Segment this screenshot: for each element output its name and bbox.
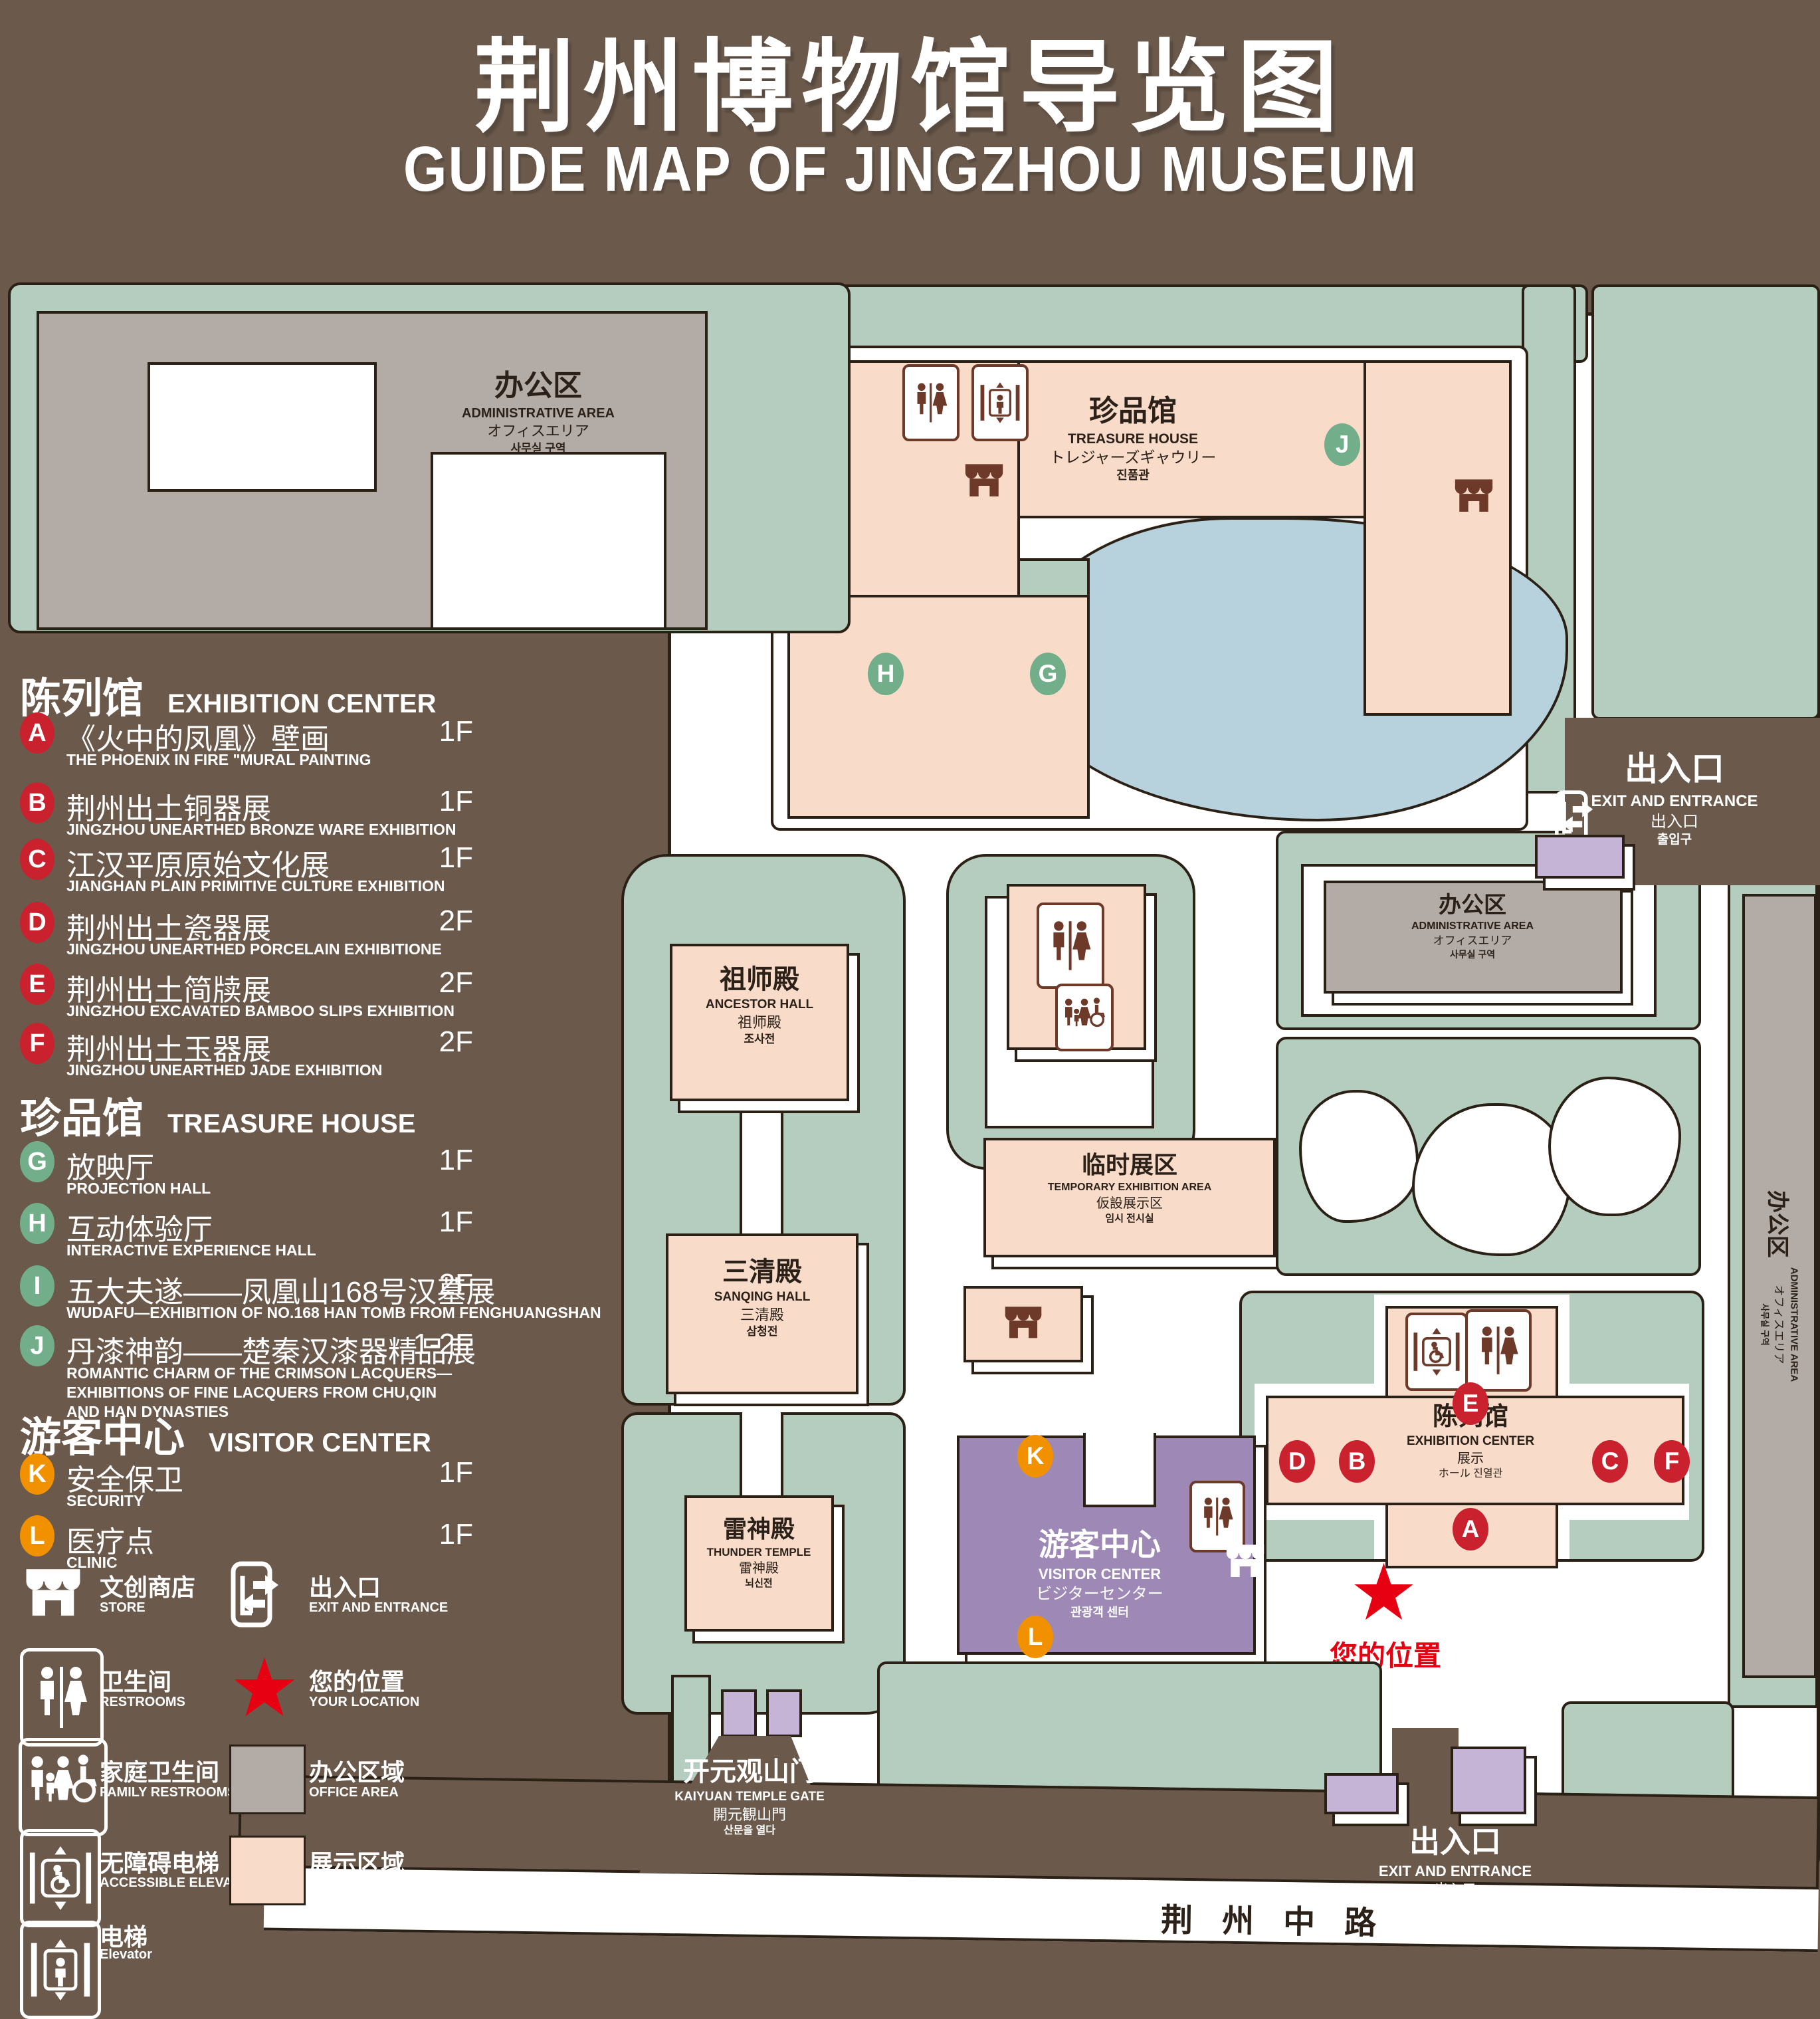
southeast-exit-label: 出入口 EXIT AND ENTRANCE 出入口 출입구 — [1379, 1822, 1532, 1914]
map-marker-H: H — [868, 653, 904, 695]
south-boundary-band: 荆州中路 — [237, 1774, 1819, 1970]
elevator-icon — [20, 1921, 101, 2019]
road-name: 荆州中路 — [1161, 1893, 1406, 1943]
restrooms-icon — [1037, 903, 1104, 989]
admin-east-label: 办公区 ADMINISTRATIVE AREA オフィスエリア 사무실 구역 — [1760, 1190, 1800, 1382]
map-marker-A: A — [1453, 1508, 1488, 1550]
map-marker-L: L — [1017, 1616, 1053, 1658]
legend-location-sublabel: YOUR LOCATION — [309, 1695, 419, 1710]
legend-accessible-elevator-label: 无障碍电梯 — [100, 1844, 219, 1879]
page-title: 荆州博物馆导览图 — [474, 5, 1346, 152]
restrooms-icon — [902, 364, 960, 441]
guide-map-poster: { "title": {"zh": "荆州博物馆导览图", "en": "GUI… — [0, 0, 1820, 1946]
exit-icon — [223, 1555, 289, 1634]
sanqing-hall-label: 三清殿 SANQING HALL 三清殿 삼청전 — [714, 1255, 811, 1339]
map-marker-C: C — [1592, 1440, 1628, 1483]
store-icon — [1000, 1303, 1047, 1344]
restrooms-icon — [1465, 1309, 1532, 1392]
legend-elevator-sublabel: Elevator — [100, 1947, 152, 1963]
store-icon — [1221, 1541, 1269, 1583]
northeast-gate-building — [1535, 835, 1625, 879]
store-icon — [960, 460, 1008, 502]
admin-northwest-label: 办公区 ADMINISTRATIVE AREA オフィスエリア 사무실 구역 — [462, 367, 615, 456]
gate-building-west — [721, 1689, 757, 1737]
admin-center-label: 办公区 ADMINISTRATIVE AREA オフィスエリア 사무실 구역 — [1411, 891, 1534, 960]
map-marker-F: F — [1654, 1440, 1690, 1483]
admin-courtyard-east — [431, 452, 666, 630]
legend-restrooms-label: 卫生间 — [100, 1663, 171, 1697]
legend-section-visitor-center: 游客中心VISITOR CENTER — [20, 1404, 431, 1463]
display-area-swatch — [229, 1836, 306, 1905]
gate-building-east — [766, 1689, 802, 1737]
garden-pond — [1299, 1090, 1419, 1223]
ancestor-hall-label: 祖师殿 ANCESTOR HALL 祖师殿 조사전 — [706, 962, 813, 1047]
garden-pond — [1412, 1103, 1571, 1256]
accessible-elevator-icon — [1405, 1313, 1468, 1391]
map-marker-B: B — [1339, 1440, 1375, 1483]
location-star-icon — [231, 1656, 298, 1719]
legend-section-treasure-house: 珍品馆TREASURE HOUSE — [20, 1085, 415, 1144]
legend-display-area-label: 展示区域 — [309, 1844, 405, 1879]
northeast-exit-label: 出入口 EXIT AND ENTRANCE 出入口 출입구 — [1591, 748, 1758, 849]
restrooms-icon — [20, 1648, 104, 1747]
map-marker-D: D — [1279, 1440, 1315, 1483]
legend-location-label: 您的位置 — [309, 1663, 405, 1697]
admin-courtyard-west — [148, 362, 377, 492]
legend-office-area-label: 办公区域 — [309, 1753, 405, 1788]
kaiyuan-gate-label: 开元观山门 KAIYUAN TEMPLE GATE 開元観山門 산문을 열다 — [674, 1754, 825, 1838]
temporary-exhibition-label: 临时展区 TEMPORARY EXHIBITION AREA 仮設展示区 임시 … — [1048, 1150, 1212, 1225]
accessible-elevator-icon — [20, 1829, 101, 1927]
southeast-gate-west — [1324, 1773, 1399, 1814]
family-restrooms-icon — [1055, 984, 1114, 1051]
courtyard-path — [740, 1105, 783, 1236]
legend-badge-A: A — [20, 712, 54, 754]
legend-store-label: 文创商店 — [100, 1568, 195, 1603]
southeast-exit-path — [1392, 1728, 1459, 1834]
legend-exit-sublabel: EXIT AND ENTRANCE — [309, 1600, 448, 1616]
store-icon — [1450, 475, 1498, 518]
courtyard-path — [740, 1412, 783, 1499]
northeast-green-block — [1591, 284, 1820, 720]
elevator-icon — [971, 364, 1029, 441]
map-marker-E: E — [1453, 1382, 1488, 1425]
legend-exit-label: 出入口 — [309, 1568, 381, 1603]
treasure-house-east-wing — [1364, 360, 1512, 716]
map-marker-G: G — [1030, 653, 1066, 695]
legend-store-sublabel: STORE — [100, 1600, 146, 1616]
legend-office-area-sublabel: OFFICE AREA — [309, 1785, 399, 1800]
thunder-temple-label: 雷神殿 THUNDER TEMPLE 雷神殿 뇌신전 — [707, 1514, 811, 1590]
south-green-center — [877, 1661, 1382, 1794]
office-area-swatch — [229, 1745, 306, 1814]
map-marker-K: K — [1017, 1435, 1053, 1477]
visitor-center-label: 游客中心 VISITOR CENTER ビジターセンター 관광객 센터 — [1036, 1525, 1163, 1620]
legend-family-restrooms-sublabel: FAMILY RESTROOMS — [100, 1785, 237, 1800]
legend-family-restrooms-label: 家庭卫生间 — [100, 1753, 219, 1788]
family-restrooms-icon — [19, 1738, 108, 1836]
southeast-gate-east — [1451, 1747, 1526, 1814]
treasure-house-label: 珍品馆 TREASURE HOUSE トレジャーズギャウリー 진품관 — [1050, 392, 1217, 484]
legend-display-area-sublabel: DISPLAY AREA — [309, 1875, 406, 1891]
visitor-center-notch — [1083, 1433, 1156, 1507]
store-icon — [20, 1563, 86, 1624]
page-subtitle: GUIDE MAP OF JINGZHOU MUSEUM — [403, 133, 1417, 206]
location-star-icon — [1352, 1562, 1415, 1623]
legend-restrooms-sublabel: RESTROOMS — [100, 1695, 185, 1710]
map-marker-J: J — [1324, 423, 1360, 466]
